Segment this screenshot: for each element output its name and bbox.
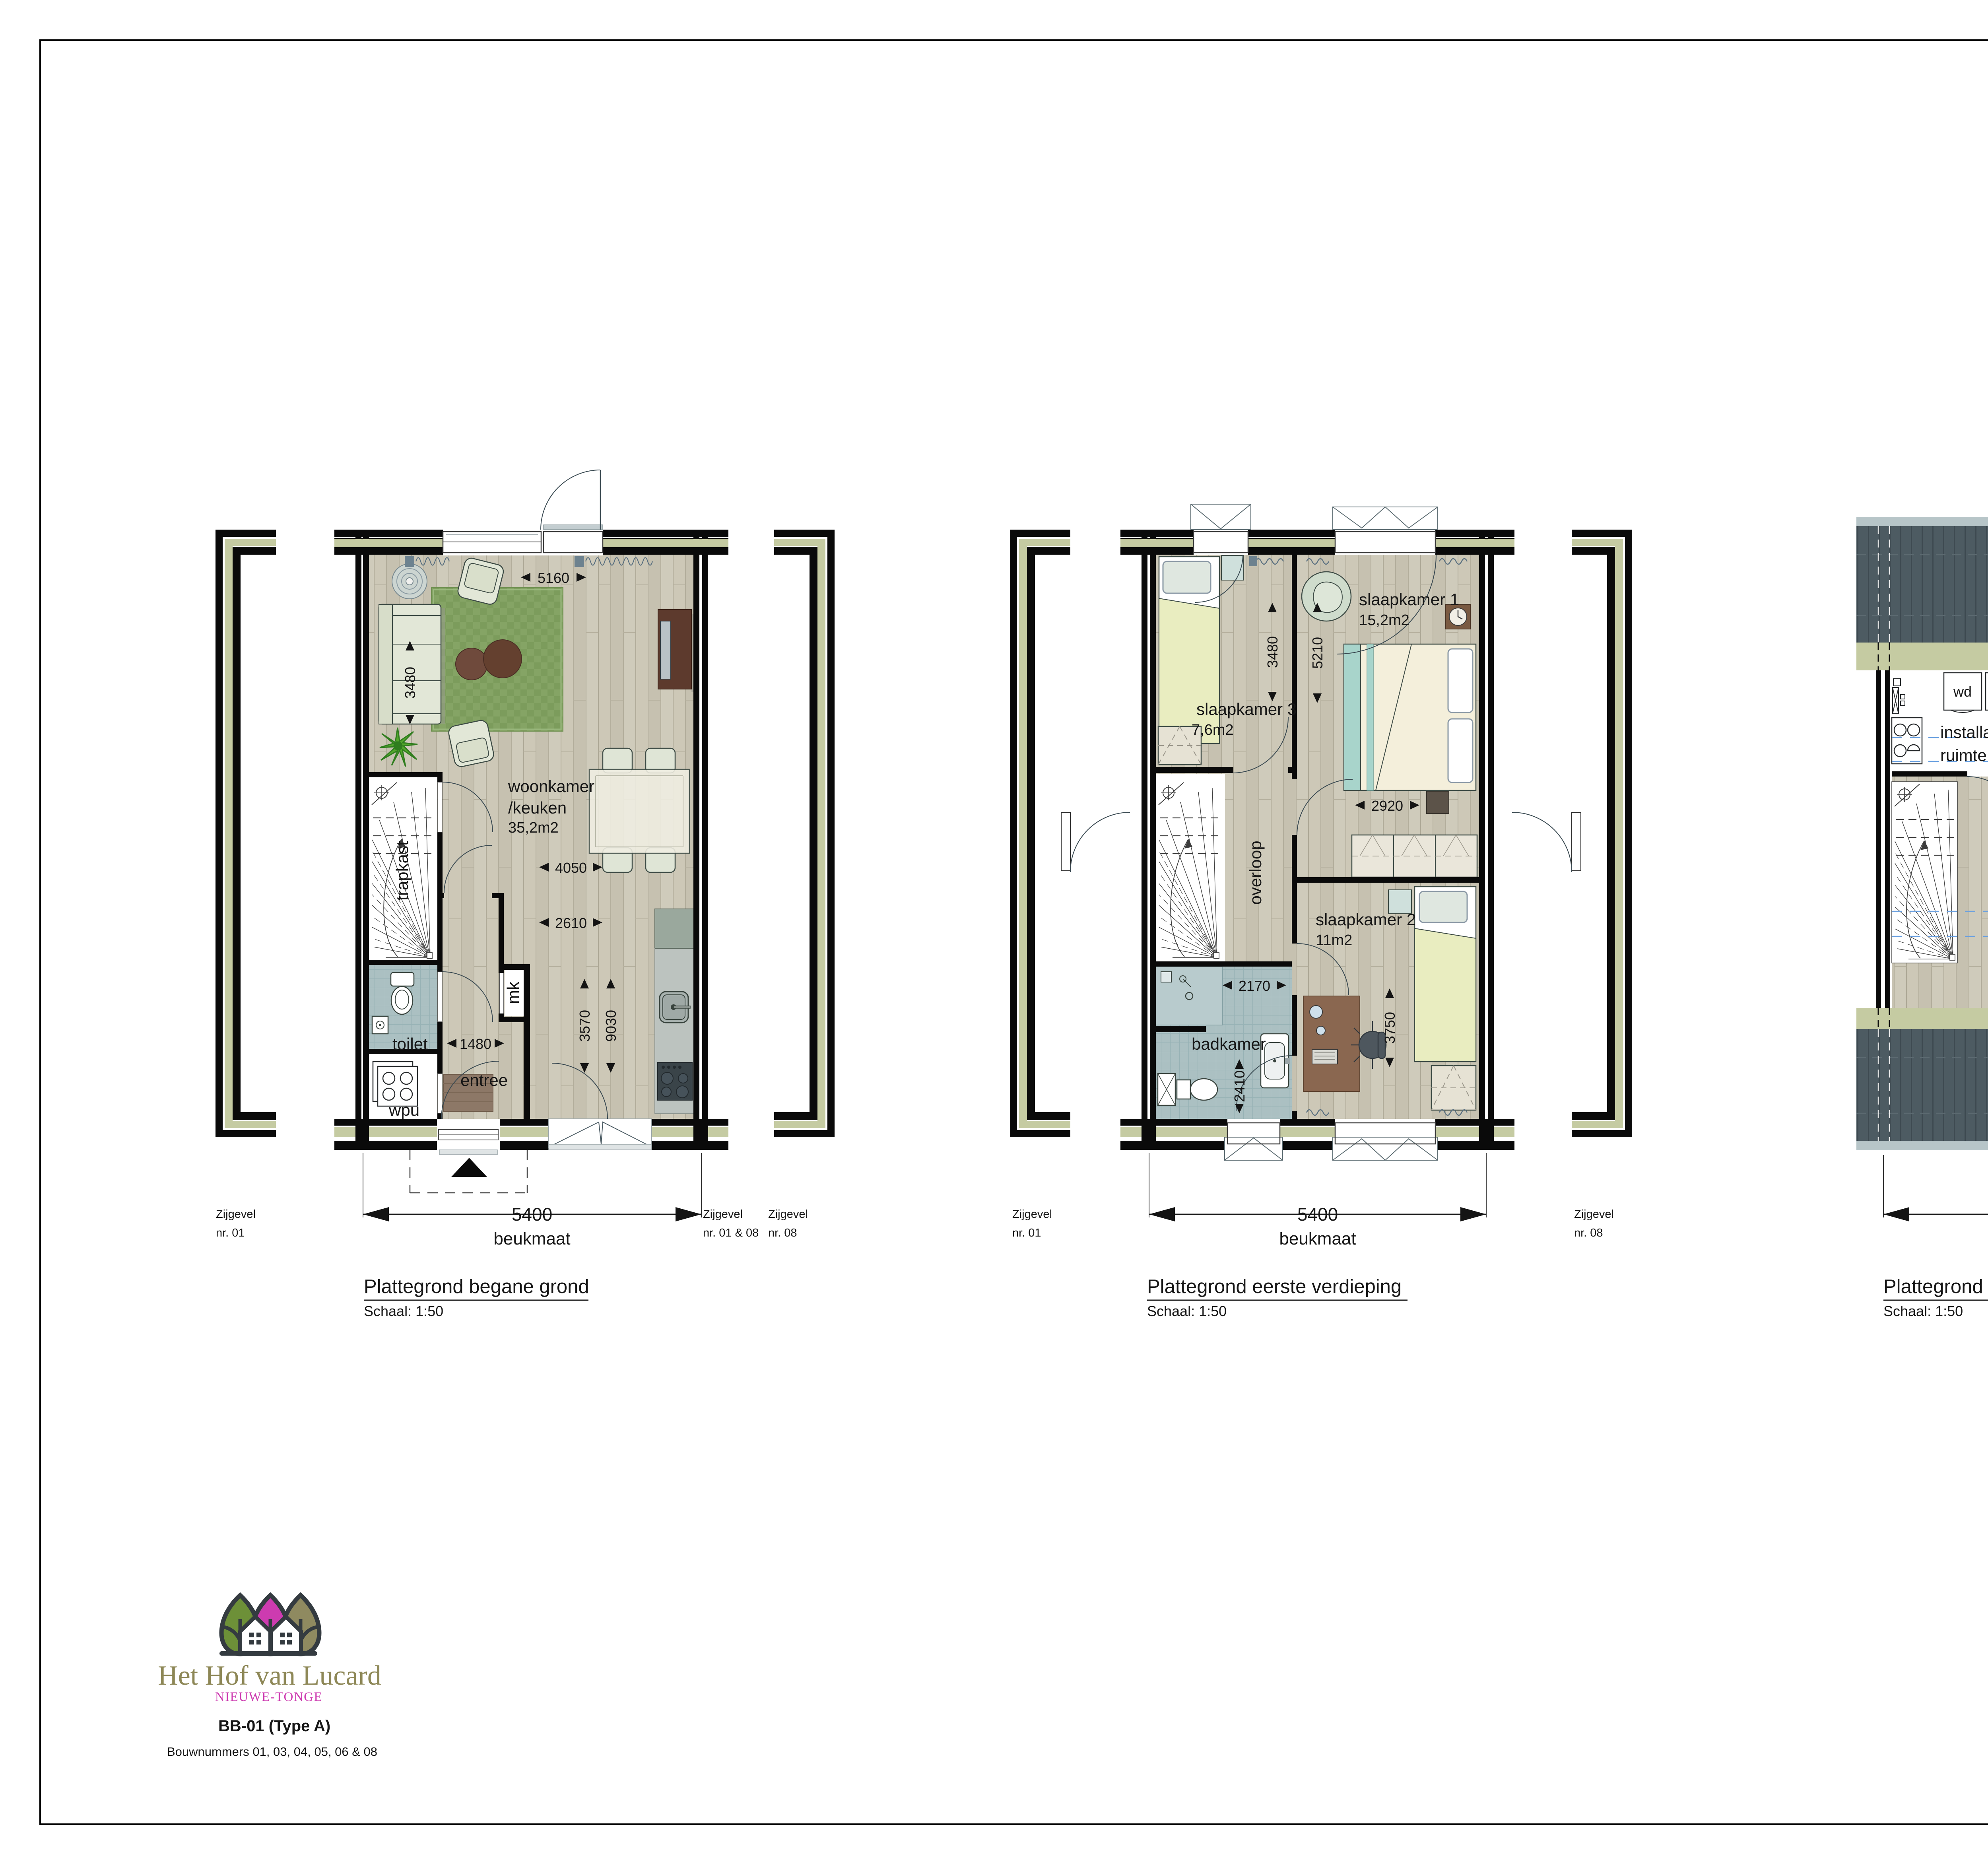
svg-text:3480: 3480 xyxy=(402,667,418,699)
svg-text:trapkast: trapkast xyxy=(393,841,412,901)
svg-text:NIEUWE-TONGE: NIEUWE-TONGE xyxy=(215,1690,322,1704)
svg-text:nr. 08: nr. 08 xyxy=(1574,1227,1603,1239)
svg-text:Plattegrond zolder: Plattegrond zolder xyxy=(1883,1276,1988,1297)
svg-text:Plattegrond begane grond: Plattegrond begane grond xyxy=(364,1276,589,1297)
svg-text:Zijgevel: Zijgevel xyxy=(768,1208,808,1221)
svg-text:5210: 5210 xyxy=(1309,637,1326,669)
svg-text:installatie: installatie xyxy=(1940,723,1988,742)
svg-text:mk: mk xyxy=(504,981,522,1004)
svg-text:7,6m2: 7,6m2 xyxy=(1192,722,1234,738)
svg-text:Zijgevel: Zijgevel xyxy=(216,1208,256,1221)
svg-text:3570: 3570 xyxy=(577,1010,593,1042)
svg-text:nr. 01 & 08: nr. 01 & 08 xyxy=(703,1227,759,1239)
svg-text:5160: 5160 xyxy=(538,570,569,586)
svg-text:woonkamer: woonkamer xyxy=(508,777,594,796)
svg-text:Zijgevel: Zijgevel xyxy=(703,1208,743,1221)
svg-text:15,2m2: 15,2m2 xyxy=(1359,612,1409,629)
svg-text:nr. 01: nr. 01 xyxy=(216,1227,245,1239)
svg-text:entree: entree xyxy=(460,1071,508,1089)
svg-text:Schaal: 1:50: Schaal: 1:50 xyxy=(364,1303,443,1319)
svg-text:Plattegrond eerste verdieping: Plattegrond eerste verdieping xyxy=(1147,1276,1402,1297)
svg-text:toilet: toilet xyxy=(392,1035,428,1053)
svg-text:3480: 3480 xyxy=(1264,636,1281,668)
svg-text:Zijgevel: Zijgevel xyxy=(1574,1208,1614,1221)
svg-text:badkamer: badkamer xyxy=(1192,1035,1266,1053)
svg-text:wd: wd xyxy=(1953,683,1972,700)
svg-text:2610: 2610 xyxy=(555,915,587,931)
svg-text:beukmaat: beukmaat xyxy=(1279,1229,1356,1248)
svg-text:35,2m2: 35,2m2 xyxy=(508,819,559,836)
svg-text:/keuken: /keuken xyxy=(508,798,567,817)
svg-text:11m2: 11m2 xyxy=(1316,932,1352,949)
svg-text:2920: 2920 xyxy=(1371,798,1403,814)
svg-text:5400: 5400 xyxy=(512,1204,552,1225)
svg-text:2170: 2170 xyxy=(1239,978,1270,994)
svg-text:Schaal: 1:50: Schaal: 1:50 xyxy=(1883,1303,1963,1319)
svg-text:9030: 9030 xyxy=(603,1010,619,1042)
svg-text:Zijgevel: Zijgevel xyxy=(1012,1208,1052,1221)
svg-text:ruimte: ruimte xyxy=(1940,746,1987,765)
svg-text:Het Hof van Lucard: Het Hof van Lucard xyxy=(158,1660,381,1691)
svg-text:Schaal: 1:50: Schaal: 1:50 xyxy=(1147,1303,1227,1319)
svg-text:3750: 3750 xyxy=(1382,1012,1398,1044)
svg-text:1480: 1480 xyxy=(460,1036,491,1052)
svg-text:nr. 01: nr. 01 xyxy=(1012,1227,1041,1239)
svg-text:slaapkamer 3: slaapkamer 3 xyxy=(1196,700,1297,718)
svg-text:slaapkamer 1: slaapkamer 1 xyxy=(1359,590,1459,609)
svg-text:2410: 2410 xyxy=(1231,1070,1248,1102)
svg-text:beukmaat: beukmaat xyxy=(493,1229,570,1248)
svg-text:4050: 4050 xyxy=(555,860,587,876)
svg-text:overloop: overloop xyxy=(1246,841,1265,905)
svg-text:5400: 5400 xyxy=(1297,1204,1338,1225)
svg-text:nr. 08: nr. 08 xyxy=(768,1227,797,1239)
svg-text:BB-01 (Type A): BB-01 (Type A) xyxy=(218,1717,330,1735)
svg-text:slaapkamer 2: slaapkamer 2 xyxy=(1316,910,1416,929)
svg-text:Bouwnummers 01, 03, 04, 05, 06: Bouwnummers 01, 03, 04, 05, 06 & 08 xyxy=(167,1745,377,1759)
svg-text:wpu: wpu xyxy=(388,1101,419,1119)
